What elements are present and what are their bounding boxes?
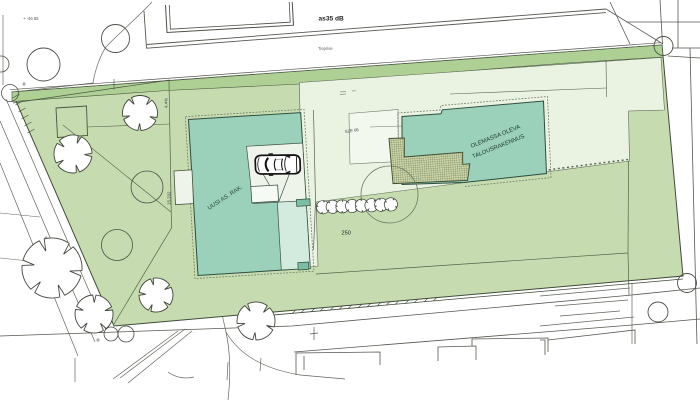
svg-text:+ -46.55: + -46.55 [23,16,39,21]
svg-text:250: 250 [342,231,351,237]
svg-text:Tieprise: Tieprise [318,46,333,51]
svg-text:as35 dB: as35 dB [319,16,345,23]
svg-text:15.292: 15.292 [167,191,172,205]
svg-text:4.4%: 4.4% [164,98,169,108]
